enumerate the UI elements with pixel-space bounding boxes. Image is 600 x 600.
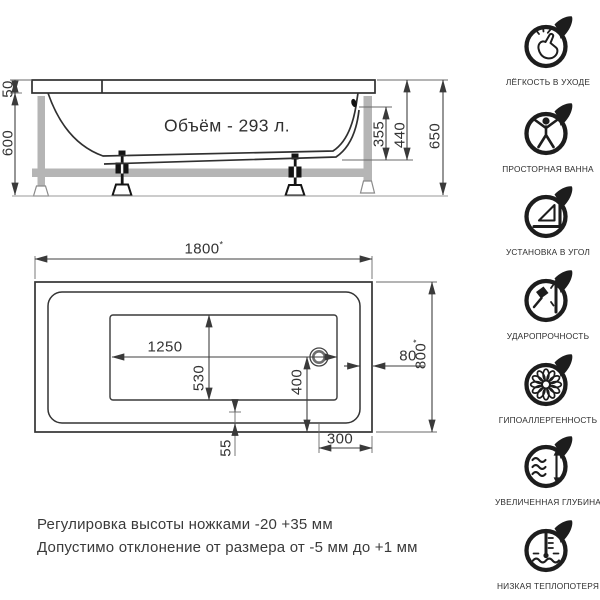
- impact-resist-icon: [520, 268, 576, 328]
- feature-label: УСТАНОВКА В УГОЛ: [492, 247, 600, 257]
- spacious-bath-icon: [520, 101, 576, 161]
- footnote-tolerance: Допустимо отклонение от размера от -5 мм…: [37, 536, 418, 559]
- dim-440: 440: [392, 122, 409, 148]
- corner-install-icon: [520, 184, 576, 244]
- feature-label: ПРОСТОРНАЯ ВАННА: [492, 164, 600, 174]
- feature-label: УДАРОПРОЧНОСТЬ: [492, 331, 600, 341]
- feature-hypoallergenic: ГИПОАЛЛЕРГЕННОСТЬ: [492, 352, 600, 425]
- feature-low-heat-loss: НИЗКАЯ ТЕПЛОПОТЕРЯ: [492, 518, 600, 591]
- dim-height-600: 600: [0, 130, 17, 156]
- feature-label: НИЗКАЯ ТЕПЛОПОТЕРЯ: [492, 581, 600, 591]
- top-extension-lines: [35, 256, 437, 456]
- hypoallergenic-icon: [520, 352, 576, 412]
- corner-foot-right: [361, 181, 375, 193]
- footnotes: Регулировка высоты ножками -20 +35 мм До…: [37, 513, 418, 559]
- dim-55: 55: [218, 439, 235, 457]
- dim-1250: 1250: [148, 339, 183, 356]
- extra-depth-icon: [520, 434, 576, 494]
- dim-1800-value: 1800: [185, 241, 220, 258]
- top-view: [35, 256, 437, 456]
- dim-800-star: *: [412, 339, 422, 343]
- volume-label: Объём - 293 л.: [164, 116, 290, 137]
- dim-530: 530: [191, 365, 208, 391]
- footnote-adjustment: Регулировка высоты ножками -20 +35 мм: [37, 513, 418, 536]
- feature-label: ГИПОАЛЛЕРГЕННОСТЬ: [492, 415, 600, 425]
- feature-label: ЛЁГКОСТЬ В УХОДЕ: [492, 77, 600, 87]
- dim-1800-star: *: [220, 240, 224, 250]
- feature-spacious: ПРОСТОРНАЯ ВАННА: [492, 101, 600, 174]
- easy-care-icon: [520, 14, 576, 74]
- dim-355: 355: [371, 121, 388, 147]
- feature-impact-resist: УДАРОПРОЧНОСТЬ: [492, 268, 600, 341]
- feature-label: УВЕЛИЧЕННАЯ ГЛУБИНА: [492, 497, 600, 507]
- dim-650: 650: [427, 123, 444, 149]
- dim-400: 400: [289, 369, 306, 395]
- bathtub-spec-sheet: Объём - 293 л. 50 600 355 440 650 1800* …: [0, 0, 600, 600]
- feature-corner-install: УСТАНОВКА В УГОЛ: [492, 184, 600, 257]
- feature-easy-care: ЛЁГКОСТЬ В УХОДЕ: [492, 14, 600, 87]
- feature-extra-depth: УВЕЛИЧЕННАЯ ГЛУБИНА: [492, 434, 600, 507]
- dim-1800: 1800*: [185, 241, 224, 258]
- dim-rim-50: 50: [0, 80, 17, 98]
- support-frame: [32, 96, 372, 186]
- low-heat-loss-icon: [520, 518, 576, 578]
- dim-80: 80: [399, 348, 417, 365]
- corner-foot-left: [34, 186, 49, 196]
- dim-300: 300: [327, 431, 353, 448]
